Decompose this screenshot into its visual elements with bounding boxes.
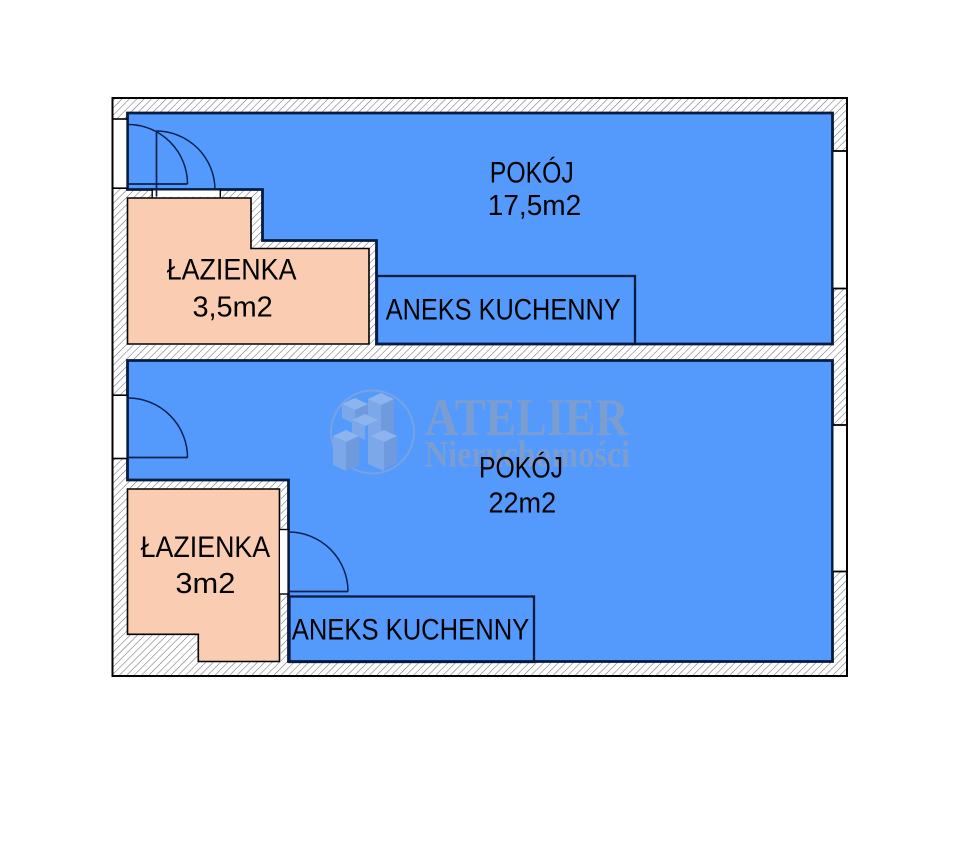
svg-text:22m2: 22m2 (488, 488, 556, 520)
svg-text:3,5m2: 3,5m2 (192, 291, 272, 323)
svg-text:POKÓJ: POKÓJ (490, 157, 574, 190)
svg-text:3m2: 3m2 (175, 568, 235, 600)
svg-text:POKÓJ: POKÓJ (479, 452, 563, 485)
svg-text:ŁAZIENKA: ŁAZIENKA (141, 531, 271, 564)
svg-text:ANEKS KUCHENNY: ANEKS KUCHENNY (292, 613, 530, 646)
svg-text:ANEKS KUCHENNY: ANEKS KUCHENNY (386, 293, 621, 326)
svg-text:17,5m2: 17,5m2 (488, 190, 582, 222)
svg-text:ŁAZIENKA: ŁAZIENKA (167, 254, 297, 287)
